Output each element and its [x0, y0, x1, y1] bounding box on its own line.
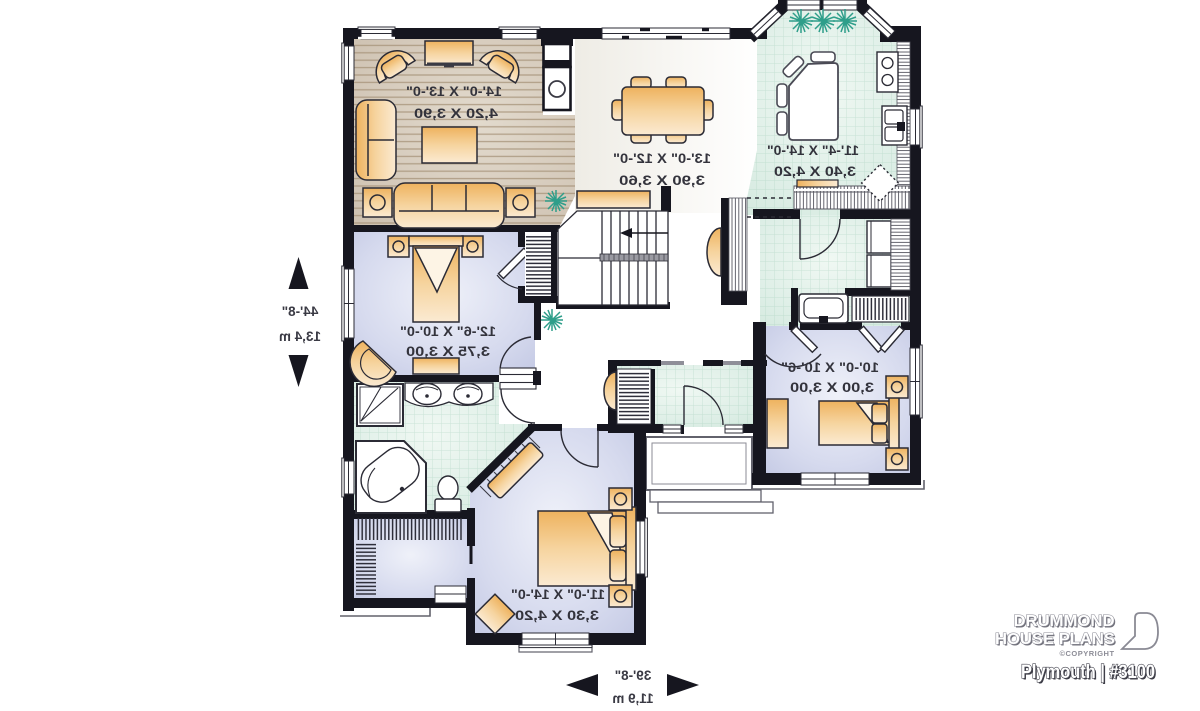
svg-text:Plymouth | #3100: Plymouth | #3100 [1021, 662, 1155, 683]
svg-text:11,9 m: 11,9 m [612, 691, 653, 706]
svg-text:DRUMMOND: DRUMMOND [1014, 613, 1115, 630]
svg-text:©COPYRIGHT: ©COPYRIGHT [1059, 649, 1114, 658]
svg-text:44'-8": 44'-8" [282, 304, 319, 319]
svg-text:3,75 X 3,00: 3,75 X 3,00 [406, 344, 490, 359]
svg-text:10'-0" X 10'-6": 10'-0" X 10'-6" [781, 360, 879, 375]
svg-text:12'-6" X 10'-0": 12'-6" X 10'-0" [400, 324, 496, 339]
svg-text:13,4 m: 13,4 m [279, 329, 321, 344]
svg-text:3,30 X 4,20: 3,30 X 4,20 [515, 608, 599, 623]
svg-text:14'-0" X 13'-0": 14'-0" X 13'-0" [406, 84, 502, 99]
svg-text:4,20 X 3,90: 4,20 X 3,90 [414, 106, 498, 121]
svg-text:11'-4" X 14'-0": 11'-4" X 14'-0" [767, 143, 859, 158]
svg-text:13'-0" X 12'-0": 13'-0" X 12'-0" [613, 151, 711, 166]
svg-text:39'-8": 39'-8" [615, 668, 652, 683]
svg-text:11'-0" X 14'-0": 11'-0" X 14'-0" [511, 587, 605, 602]
svg-text:3,90 X 3,60: 3,90 X 3,60 [619, 173, 705, 188]
svg-text:3,00 X 3,00: 3,00 X 3,00 [790, 380, 874, 395]
svg-text:3,40 X 4,20: 3,40 X 4,20 [774, 164, 856, 179]
svg-text:HOUSE PLANS: HOUSE PLANS [995, 631, 1115, 648]
